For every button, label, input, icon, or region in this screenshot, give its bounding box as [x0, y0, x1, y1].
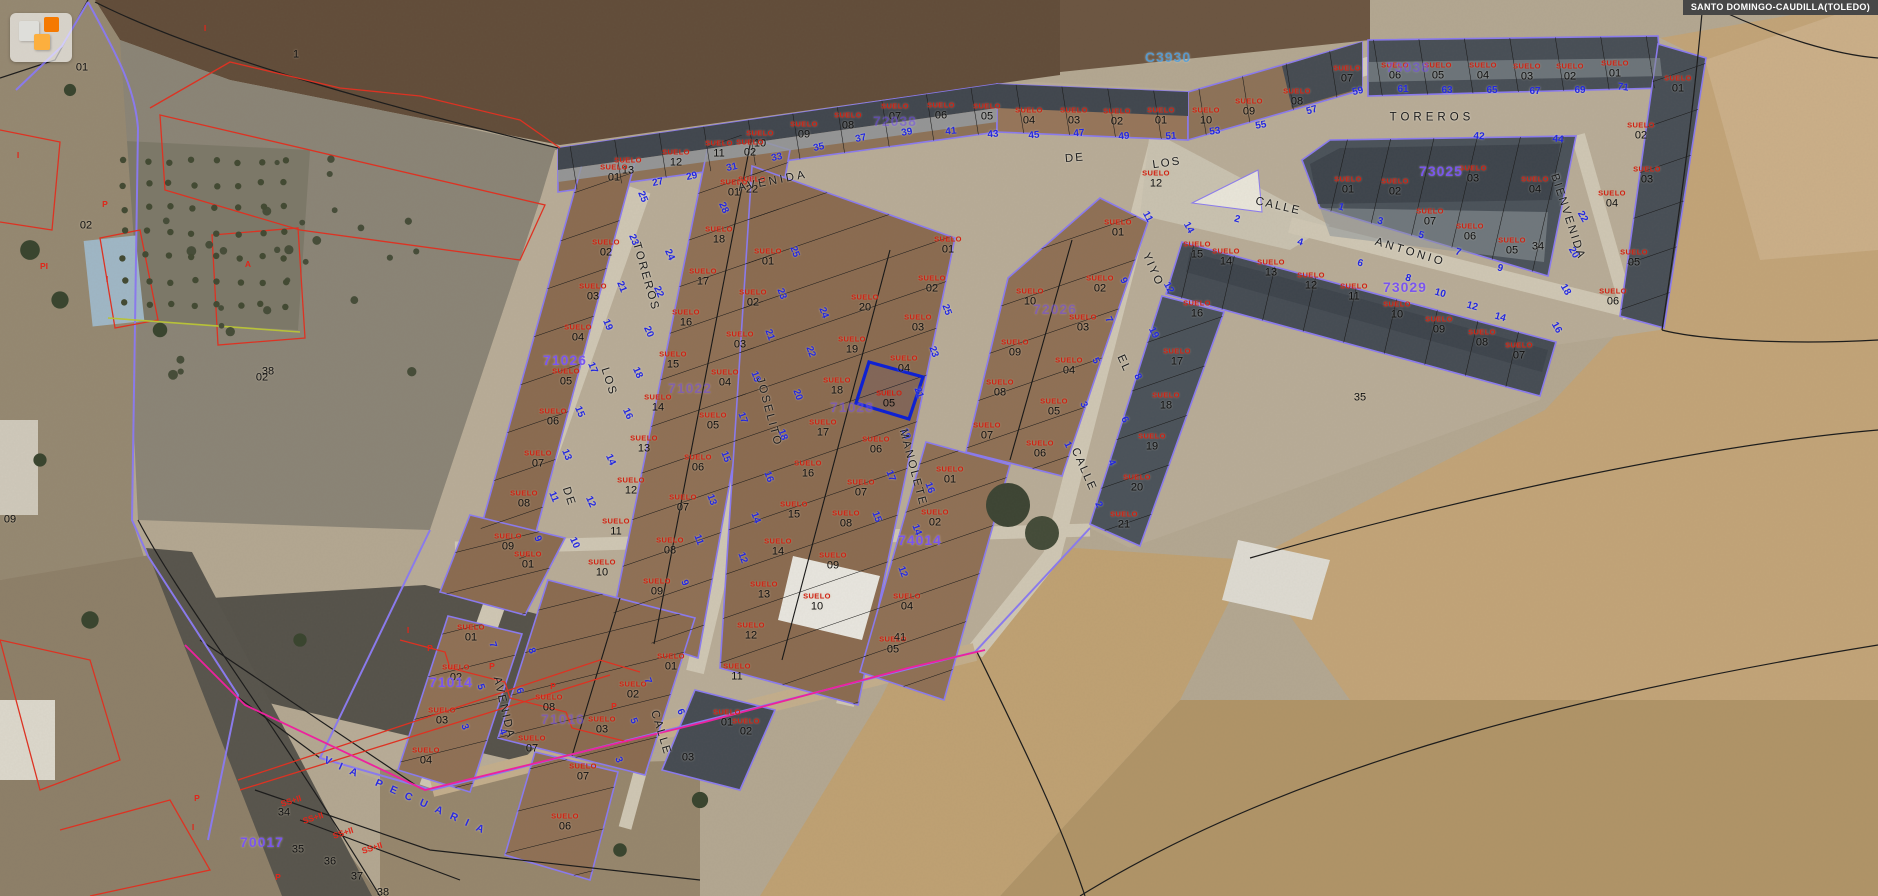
parcel-number: 01	[657, 661, 685, 672]
field-parcel-number: 02	[256, 373, 268, 384]
parcel-label[interactable]: SUELO01	[1664, 74, 1692, 94]
suelo-tag: SUELO	[535, 693, 563, 701]
parcel-label[interactable]: SUELO05	[973, 102, 1001, 122]
field-parcel-number: 34	[278, 808, 290, 819]
parcel-label[interactable]: SUELO14	[764, 537, 792, 557]
parcel-label[interactable]: SUELO01	[1104, 218, 1132, 238]
house-number: 24	[662, 248, 676, 262]
suelo-tag: SUELO	[1381, 177, 1409, 185]
field-parcel-number: 09	[4, 515, 16, 526]
parcel-number: 10	[1383, 309, 1411, 320]
house-number: 21	[911, 386, 924, 400]
parcel-number: 07	[518, 743, 546, 754]
parcel-label[interactable]: SUELO18	[823, 376, 851, 396]
parcel-number: 08	[1468, 337, 1496, 348]
parcel-label[interactable]: SUELO11	[705, 139, 733, 159]
parcel-number: 12	[1297, 280, 1325, 291]
suelo-tag: SUELO	[592, 238, 620, 246]
house-number: 1	[1337, 202, 1345, 213]
parcel-label[interactable]: SUELO12	[1142, 169, 1170, 189]
house-number: 16	[761, 470, 774, 484]
parcel-label[interactable]: SUELO03	[428, 706, 456, 726]
parcel-label[interactable]: SUELO12	[662, 148, 690, 168]
house-number: 8	[525, 647, 536, 656]
parcel-label[interactable]: SUELO02	[736, 138, 764, 158]
parcel-label[interactable]: SUELO12	[1297, 271, 1325, 291]
house-number: 23	[774, 287, 787, 301]
parcel-label[interactable]: SUELO03	[579, 282, 607, 302]
parcel-label[interactable]: SUELO01	[936, 465, 964, 485]
parcel-label[interactable]: SUELO14	[1212, 247, 1240, 267]
parcel-number: 03	[1069, 322, 1097, 333]
parcel-label[interactable]: SUELO07	[669, 493, 697, 513]
house-number: 19	[1146, 326, 1160, 340]
parcel-number: 15	[780, 509, 808, 520]
parcel-label[interactable]: SUELO02	[732, 717, 760, 737]
parcel-label[interactable]: SUELO17	[809, 418, 837, 438]
parcel-label[interactable]: SUELO05	[1040, 397, 1068, 417]
parcel-number: 12	[662, 157, 690, 168]
parcel-label[interactable]: SUELO08	[535, 693, 563, 713]
parcel-label[interactable]: SUELO01	[754, 247, 782, 267]
parcel-label[interactable]: SUELO04	[1521, 175, 1549, 195]
construction-annotation: I	[17, 151, 19, 160]
suelo-tag: SUELO	[442, 663, 470, 671]
house-number: 71	[1617, 82, 1629, 93]
house-number: 3	[1077, 400, 1088, 409]
parcel-number: 02	[1627, 130, 1655, 141]
parcel-label[interactable]: SUELO06	[1456, 222, 1484, 242]
block-id[interactable]: 74014	[898, 533, 942, 547]
suelo-tag: SUELO	[803, 592, 831, 600]
house-number: 12	[583, 495, 597, 509]
house-number: 69	[1574, 86, 1585, 96]
parcel-label[interactable]: SUELO06	[551, 812, 579, 832]
parcel-label[interactable]: SUELO05	[1498, 236, 1526, 256]
block-id[interactable]: 71016	[541, 712, 585, 726]
parcel-label[interactable]: SUELO15	[659, 350, 687, 370]
parcel-label[interactable]: SUELO01	[657, 652, 685, 672]
parcel-number: 02	[736, 147, 764, 158]
parcel-number: 09	[1425, 324, 1453, 335]
suelo-tag: SUELO	[973, 421, 1001, 429]
parcel-label[interactable]: SUELO18	[1152, 391, 1180, 411]
cadastral-map-viewport[interactable]: SUELO13SUELO12SUELO11SUELO10SUELO09SUELO…	[0, 0, 1878, 896]
parcel-label[interactable]: SUELO03	[726, 330, 754, 350]
parcel-label[interactable]: SUELO08	[986, 378, 1014, 398]
suelo-tag: SUELO	[723, 662, 751, 670]
suelo-tag: SUELO	[630, 434, 658, 442]
suelo-tag: SUELO	[579, 282, 607, 290]
parcel-label[interactable]: SUELO02	[1381, 177, 1409, 197]
parcel-number: 02	[619, 689, 647, 700]
block-id[interactable]: 71026	[543, 353, 587, 367]
parcel-number: 04	[1055, 365, 1083, 376]
parcel-number: 01	[1104, 227, 1132, 238]
parcel-label[interactable]: SUELO02	[1627, 121, 1655, 141]
house-number: 31	[726, 162, 739, 174]
parcel-number: 03	[579, 291, 607, 302]
block-id[interactable]: 71022	[668, 381, 712, 395]
parcel-label[interactable]: SUELO11	[1340, 282, 1368, 302]
parcel-label[interactable]: SUELO11	[602, 517, 630, 537]
parcel-label[interactable]: SUELO09	[819, 551, 847, 571]
house-number: 4	[1296, 237, 1304, 248]
suelo-tag: SUELO	[832, 509, 860, 517]
parcel-label[interactable]: SUELO03	[1060, 106, 1088, 126]
construction-annotation: P	[550, 682, 556, 691]
house-number: 25	[939, 303, 952, 317]
house-number: 33	[771, 152, 784, 164]
parcel-label[interactable]: SUELO03	[904, 313, 932, 333]
parcel-number: 04	[893, 601, 921, 612]
house-number: 4	[1105, 458, 1116, 467]
parcel-label[interactable]: SUELO18	[705, 225, 733, 245]
suelo-tag: SUELO	[1425, 315, 1453, 323]
parcel-label[interactable]: SUELO08	[832, 509, 860, 529]
parcel-label[interactable]: SUELO07	[1333, 64, 1361, 84]
suelo-tag: SUELO	[1468, 328, 1496, 336]
parcel-label[interactable]: SUELO07	[524, 449, 552, 469]
parcel-label[interactable]: SUELO09	[1235, 97, 1263, 117]
house-number: 9	[531, 535, 542, 544]
parcel-label[interactable]: SUELO05	[552, 367, 580, 387]
block-id[interactable]: 73038	[1386, 60, 1430, 74]
parcel-number: 17	[689, 276, 717, 287]
house-number: 23	[926, 345, 939, 359]
selected-parcel-label[interactable]: SUELO05	[876, 389, 902, 409]
parcel-label[interactable]: SUELO04	[890, 354, 918, 374]
suelo-tag: SUELO	[518, 734, 546, 742]
parcel-number: 21	[1110, 519, 1138, 530]
field-parcel-number: 35	[292, 845, 304, 856]
parcel-label[interactable]: SUELO12	[617, 476, 645, 496]
field-parcel-number: 03	[682, 753, 694, 764]
construction-annotation: I	[204, 24, 206, 33]
parcel-label[interactable]: SUELO07	[847, 478, 875, 498]
parcel-number: 06	[551, 821, 579, 832]
construction-annotation: P	[102, 200, 108, 209]
parcel-label[interactable]: SUELO04	[711, 368, 739, 388]
suelo-tag: SUELO	[1297, 271, 1325, 279]
parcel-label[interactable]: SUELO01	[1147, 106, 1175, 126]
house-number: 8	[1131, 372, 1142, 381]
construction-annotation: P	[275, 873, 281, 882]
house-number: 63	[1441, 86, 1452, 96]
parcel-number: 04	[1521, 184, 1549, 195]
parcel-label[interactable]: SUELO20	[851, 293, 879, 313]
parcel-number: 06	[684, 462, 712, 473]
suelo-tag: SUELO	[904, 313, 932, 321]
parcel-label[interactable]: SUELO09	[1001, 338, 1029, 358]
suelo-tag: SUELO	[699, 411, 727, 419]
house-number: 9	[678, 579, 689, 588]
suelo-tag: SUELO	[1283, 87, 1311, 95]
parcel-label[interactable]: SUELO12	[737, 621, 765, 641]
parcel-label[interactable]: SUELO13	[750, 580, 778, 600]
house-number: 15	[718, 450, 731, 464]
parcel-label[interactable]: SUELO07	[518, 734, 546, 754]
house-number: 55	[1255, 120, 1268, 132]
parcel-number: 01	[1147, 115, 1175, 126]
house-number: 12	[895, 565, 908, 579]
parcel-label[interactable]: SUELO16	[672, 308, 700, 328]
house-number: 6	[1118, 415, 1129, 424]
block-id[interactable]: C3930	[1145, 50, 1191, 64]
suelo-tag: SUELO	[1257, 258, 1285, 266]
house-number: 22	[1575, 210, 1589, 225]
suelo-tag: SUELO	[1620, 248, 1648, 256]
suelo-tag: SUELO	[662, 148, 690, 156]
parcel-label[interactable]: SUELO11	[723, 662, 751, 682]
house-number: 7	[486, 641, 497, 649]
parcel-label[interactable]: SUELO04	[564, 323, 592, 343]
construction-annotation: I	[106, 275, 108, 284]
parcel-number: 17	[1163, 356, 1191, 367]
street-name: AVENIDA	[490, 676, 516, 741]
parcel-label[interactable]: SUELO09	[790, 120, 818, 140]
house-number: 14	[748, 511, 761, 525]
suelo-tag: SUELO	[588, 558, 616, 566]
parcel-number: 07	[847, 487, 875, 498]
parcel-label[interactable]: SUELO02	[1556, 62, 1584, 82]
house-number: 2	[1233, 214, 1241, 225]
construction-annotation: PI	[40, 262, 48, 271]
house-number: 11	[546, 490, 559, 504]
parcel-label[interactable]: SUELO02	[592, 238, 620, 258]
house-number: 13	[559, 448, 572, 462]
construction-annotation: SS+II	[302, 811, 325, 826]
block-id[interactable]: 73025	[1419, 164, 1463, 178]
parcel-label[interactable]: SUELO16	[1183, 299, 1211, 319]
block-id[interactable]: 71014	[429, 675, 473, 689]
house-number: 11	[691, 533, 704, 546]
parcel-label[interactable]: SUELO15	[780, 500, 808, 520]
house-number: 19	[600, 318, 613, 332]
parcel-label[interactable]: SUELO07	[569, 762, 597, 782]
suelo-tag: SUELO	[1026, 439, 1054, 447]
house-number: 67	[1529, 87, 1540, 97]
parcel-label[interactable]: SUELO04	[412, 746, 440, 766]
parcel-number: 06	[1599, 296, 1627, 307]
parcel-number: 10	[588, 567, 616, 578]
house-number: 5	[474, 683, 485, 691]
house-number: 16	[620, 407, 634, 421]
field-parcel-number: 34	[1532, 242, 1544, 253]
parcel-label[interactable]: SUELO01	[934, 235, 962, 255]
parcel-label[interactable]: SUELO06	[1599, 287, 1627, 307]
parcel-label[interactable]: SUELO10	[1383, 300, 1411, 320]
parcel-label[interactable]: SUELO04	[893, 592, 921, 612]
suelo-tag: SUELO	[494, 532, 522, 540]
parcel-number: 04	[890, 363, 918, 374]
suelo-tag: SUELO	[1212, 247, 1240, 255]
parcel-label[interactable]: SUELO17	[689, 267, 717, 287]
parcel-label[interactable]: SUELO02	[1086, 274, 1114, 294]
parcel-label[interactable]: SUELO03	[1633, 165, 1661, 185]
municipality-title-bar: SANTO DOMINGO-CAUDILLA(TOLEDO)	[1683, 0, 1878, 15]
parcel-label[interactable]: SUELO02	[1103, 107, 1131, 127]
block-id[interactable]: 73029	[1383, 280, 1427, 294]
parcel-number: 01	[936, 474, 964, 485]
parcel-label[interactable]: SUELO21	[1110, 510, 1138, 530]
parcel-label[interactable]: SUELO07	[973, 421, 1001, 441]
house-number: 17	[585, 361, 598, 375]
parcel-label[interactable]: SUELO13	[1257, 258, 1285, 278]
parcel-label[interactable]: SUELO19	[838, 335, 866, 355]
suelo-tag: SUELO	[1040, 397, 1068, 405]
field-parcel-number: 37	[351, 872, 363, 883]
parcel-label[interactable]: SUELO09	[643, 577, 671, 597]
parcel-number: 12	[617, 485, 645, 496]
house-number: 3	[612, 756, 623, 765]
block-id[interactable]: 71028	[830, 400, 874, 414]
construction-annotation: SS+II	[332, 826, 355, 841]
house-number: 6	[674, 708, 685, 717]
suelo-tag: SUELO	[1383, 300, 1411, 308]
parcel-label[interactable]: SUELO08	[834, 111, 862, 131]
parcel-label[interactable]: SUELO07	[1416, 207, 1444, 227]
parcel-number: 05	[879, 644, 907, 655]
parcel-number: 06	[539, 416, 567, 427]
street-name: CALLE	[648, 709, 673, 757]
parcel-label[interactable]: SUELO05	[1620, 248, 1648, 268]
house-number: 24	[816, 306, 829, 320]
parcel-label[interactable]: SUELO06	[684, 453, 712, 473]
parcel-label[interactable]: SUELO04	[1469, 61, 1497, 81]
parcel-label[interactable]: SUELO07	[1505, 341, 1533, 361]
suelo-tag: SUELO	[934, 235, 962, 243]
parcel-label[interactable]: SUELO16	[794, 459, 822, 479]
block-id[interactable]: 70017	[240, 835, 284, 849]
suelo-tag: SUELO	[457, 623, 485, 631]
suelo-tag: SUELO	[851, 293, 879, 301]
parcel-number: 18	[1152, 400, 1180, 411]
parcel-label[interactable]: SUELO01	[1334, 175, 1362, 195]
parcel-label[interactable]: SUELO02	[739, 288, 767, 308]
parcel-label[interactable]: SUELO03	[1459, 164, 1487, 184]
house-number: 14	[1181, 221, 1195, 236]
parcel-label[interactable]: SUELO04	[1598, 189, 1626, 209]
suelo-tag: SUELO	[881, 102, 909, 110]
parcel-label[interactable]: SUELO02	[918, 274, 946, 294]
parcel-label[interactable]: SUELO08	[510, 489, 538, 509]
suelo-tag: SUELO	[819, 551, 847, 559]
parcel-label[interactable]: SUELO04	[1055, 356, 1083, 376]
house-number: 5	[1089, 356, 1100, 365]
parcel-number: 04	[1598, 198, 1626, 209]
house-number: 27	[652, 177, 665, 189]
suelo-tag: SUELO	[1138, 432, 1166, 440]
suelo-tag: SUELO	[657, 652, 685, 660]
suelo-tag: SUELO	[927, 101, 955, 109]
suelo-tag: SUELO	[1147, 106, 1175, 114]
suelo-tag: SUELO	[1060, 106, 1088, 114]
parcel-label[interactable]: SUELO14	[644, 393, 672, 413]
street-name: ANTONIO	[1373, 237, 1446, 269]
parcel-label[interactable]: SUELO08	[656, 536, 684, 556]
parcel-number: 14	[644, 402, 672, 413]
parcel-label[interactable]: SUELO01	[1601, 59, 1629, 79]
parcel-label[interactable]: SUELO01	[457, 623, 485, 643]
suelo-tag: SUELO	[1416, 207, 1444, 215]
parcel-label[interactable]: SUELO19	[1138, 432, 1166, 452]
parcel-label[interactable]: SUELO13	[630, 434, 658, 454]
parcel-label[interactable]: SUELO03	[588, 715, 616, 735]
street-name: TOREROS	[630, 241, 661, 312]
suelo-tag: SUELO	[1163, 347, 1191, 355]
parcel-label[interactable]: SUELO10	[803, 592, 831, 612]
parcel-label[interactable]: SUELO08	[1283, 87, 1311, 107]
field-parcel-number: 1	[293, 50, 299, 61]
street-name: YIYO	[1140, 251, 1165, 288]
house-number: 14	[1493, 312, 1506, 325]
suelo-tag: SUELO	[764, 537, 792, 545]
catastro-logo[interactable]	[10, 13, 72, 62]
parcel-number: 09	[1001, 347, 1029, 358]
house-number: 65	[1486, 86, 1497, 96]
parcel-number: 08	[656, 545, 684, 556]
suelo-tag: SUELO	[1183, 240, 1211, 248]
parcel-label[interactable]: SUELO04	[1015, 106, 1043, 126]
suelo-tag: SUELO	[746, 129, 774, 137]
suelo-tag: SUELO	[823, 376, 851, 384]
block-id[interactable]: 72026	[1033, 302, 1077, 316]
parcel-label[interactable]: SUELO01	[600, 163, 628, 183]
suelo-tag: SUELO	[809, 418, 837, 426]
parcel-label[interactable]: SUELO05	[699, 411, 727, 431]
parcel-number: 03	[1459, 173, 1487, 184]
suelo-tag: SUELO	[1086, 274, 1114, 282]
suelo-tag: SUELO	[551, 812, 579, 820]
parcel-label[interactable]: SUELO08	[1468, 328, 1496, 348]
parcel-label[interactable]: SUELO09	[1425, 315, 1453, 335]
parcel-number: 19	[1138, 441, 1166, 452]
suelo-tag: SUELO	[705, 139, 733, 147]
parcel-label[interactable]: SUELO10	[588, 558, 616, 578]
house-number: 42	[1473, 132, 1485, 143]
parcel-label[interactable]: SUELO10	[1192, 106, 1220, 126]
parcel-number: 15	[659, 359, 687, 370]
suelo-tag: SUELO	[973, 102, 1001, 110]
suelo-tag: SUELO	[1556, 62, 1584, 70]
house-number: 11	[1140, 210, 1154, 224]
parcel-label[interactable]: SUELO06	[927, 101, 955, 121]
parcel-label[interactable]: SUELO01	[514, 550, 542, 570]
block-id[interactable]: 72038	[873, 114, 917, 128]
parcel-number: 05	[1620, 257, 1648, 268]
parcel-number: 01	[1664, 83, 1692, 94]
parcel-label[interactable]: SUELO02	[921, 508, 949, 528]
parcel-label[interactable]: SUELO20	[1123, 473, 1151, 493]
parcel-label[interactable]: SUELO06	[1026, 439, 1054, 459]
parcel-label[interactable]: SUELO17	[1163, 347, 1191, 367]
house-number: 14	[603, 453, 617, 467]
suelo-tag: SUELO	[1498, 236, 1526, 244]
parcel-number: 08	[834, 120, 862, 131]
parcel-number: 06	[1026, 448, 1054, 459]
parcel-number: 03	[428, 715, 456, 726]
parcel-label[interactable]: SUELO06	[862, 435, 890, 455]
suelo-tag: SUELO	[705, 225, 733, 233]
suelo-tag: SUELO	[1104, 218, 1132, 226]
parcel-label[interactable]: SUELO03	[1513, 62, 1541, 82]
suelo-tag: SUELO	[1469, 61, 1497, 69]
suelo-tag: SUELO	[514, 550, 542, 558]
suelo-tag: SUELO	[1459, 164, 1487, 172]
parcel-label[interactable]: SUELO15	[1183, 240, 1211, 260]
parcel-label[interactable]: SUELO06	[539, 407, 567, 427]
